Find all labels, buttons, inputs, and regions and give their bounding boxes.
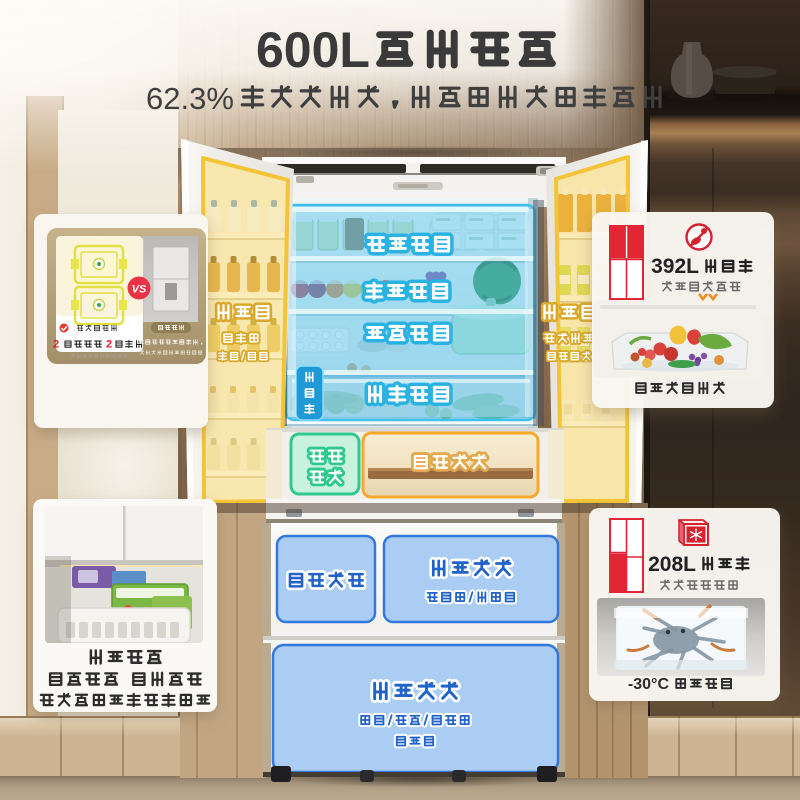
svg-text:VS: VS xyxy=(132,284,147,296)
svg-text:600L: 600L xyxy=(256,22,370,78)
svg-text:208L: 208L xyxy=(648,553,696,576)
svg-text:2: 2 xyxy=(53,339,59,351)
svg-text:62.3%: 62.3% xyxy=(146,81,234,116)
svg-text:2: 2 xyxy=(106,339,112,351)
svg-text:392L: 392L xyxy=(651,255,699,278)
svg-text:-30°C: -30°C xyxy=(628,676,670,693)
